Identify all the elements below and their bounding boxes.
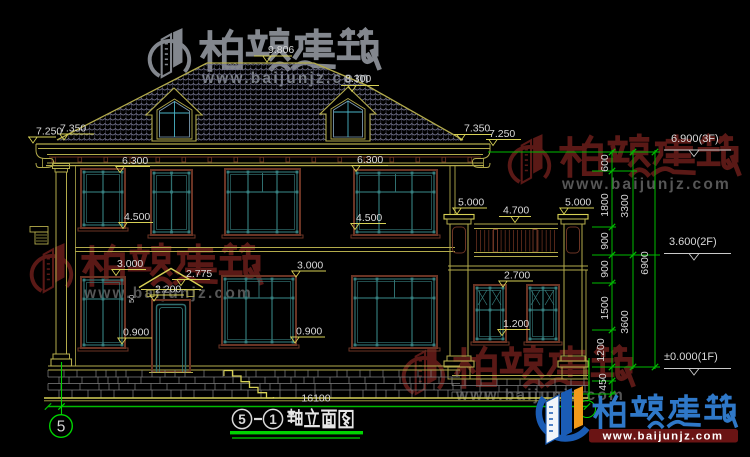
svg-text:6900: 6900 — [639, 251, 651, 275]
svg-text:2.200: 2.200 — [155, 284, 181, 296]
svg-text:3.000: 3.000 — [117, 258, 143, 270]
svg-text:7.350: 7.350 — [464, 123, 490, 135]
svg-text:2.700: 2.700 — [504, 270, 530, 282]
svg-text:4.700: 4.700 — [503, 205, 529, 217]
svg-text:3600: 3600 — [619, 310, 631, 334]
svg-text:1.200: 1.200 — [503, 318, 529, 330]
svg-text:6.300: 6.300 — [122, 155, 148, 167]
svg-text:6.300: 6.300 — [357, 154, 383, 166]
svg-text:1: 1 — [269, 412, 277, 427]
svg-text:7.350: 7.350 — [60, 123, 86, 135]
svg-text:1800: 1800 — [599, 193, 611, 217]
svg-text:16100: 16100 — [301, 393, 330, 405]
svg-text:±0.000(1F): ±0.000(1F) — [664, 351, 718, 363]
svg-text:1500: 1500 — [599, 296, 611, 320]
svg-text:3.000: 3.000 — [297, 260, 323, 272]
svg-text:3.600(2F): 3.600(2F) — [669, 236, 717, 248]
svg-text:5: 5 — [57, 419, 66, 436]
svg-text:900: 900 — [599, 260, 611, 278]
svg-text:2.775: 2.775 — [186, 268, 212, 280]
svg-text:7.250: 7.250 — [489, 128, 515, 140]
svg-text:www.baijunjz.com: www.baijunjz.com — [561, 176, 731, 193]
svg-text:9.806: 9.806 — [268, 44, 294, 56]
svg-text:900: 900 — [599, 232, 611, 250]
svg-text:7.250: 7.250 — [36, 126, 62, 138]
svg-text:600: 600 — [599, 154, 611, 172]
svg-text:4.500: 4.500 — [356, 212, 382, 224]
svg-text:6.900(3F): 6.900(3F) — [671, 133, 719, 145]
svg-text:50: 50 — [127, 295, 136, 303]
svg-text:www.baijunjz.com: www.baijunjz.com — [602, 431, 724, 443]
svg-text:8.300: 8.300 — [345, 73, 371, 85]
svg-text:5.000: 5.000 — [565, 197, 591, 209]
svg-text:0.900: 0.900 — [296, 326, 322, 338]
svg-text:3300: 3300 — [619, 194, 631, 218]
svg-text:450: 450 — [597, 373, 609, 391]
svg-text:5: 5 — [238, 412, 246, 427]
svg-text:5.000: 5.000 — [458, 197, 484, 209]
svg-text:0.900: 0.900 — [123, 327, 149, 339]
svg-text:4.500: 4.500 — [124, 211, 150, 223]
svg-text:1200: 1200 — [595, 338, 607, 362]
